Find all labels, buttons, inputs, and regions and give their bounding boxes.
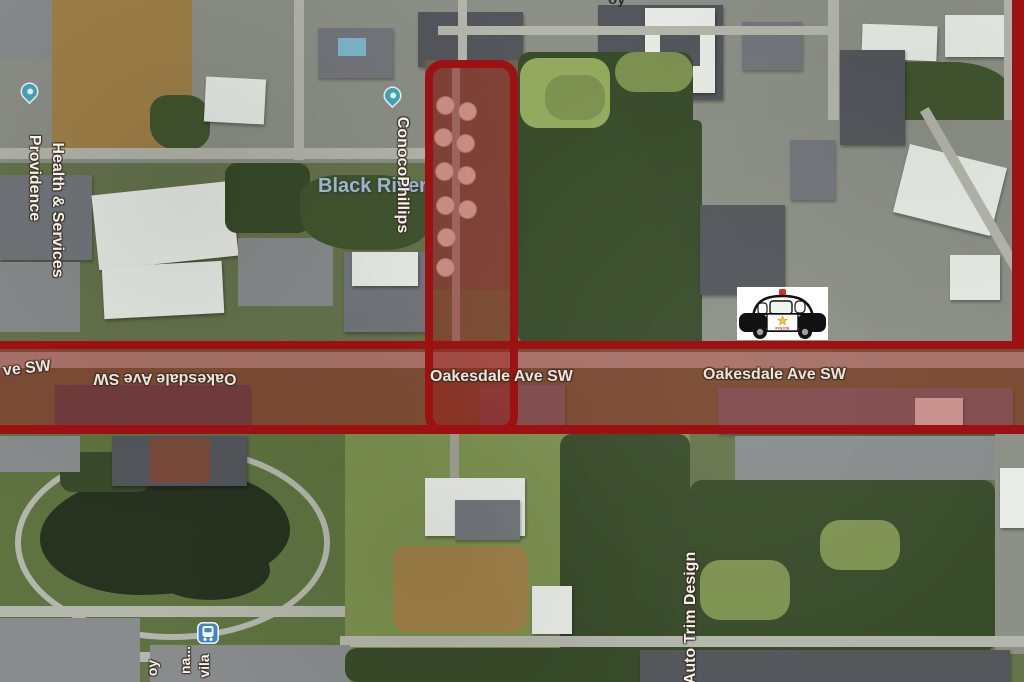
street-label-right: Oakesdale Ave SW: [703, 366, 846, 384]
parking-lot: [735, 436, 995, 480]
road: [438, 26, 838, 35]
building: [204, 76, 266, 124]
highlight-right-edge-strip: [1012, 0, 1024, 349]
building: [150, 438, 210, 483]
transit-station-icon[interactable]: [197, 622, 219, 644]
building: [700, 205, 785, 295]
pond: [150, 540, 270, 600]
dirt-field: [393, 546, 528, 632]
top-edge-label-fragment: oy: [608, 0, 626, 8]
trees: [345, 648, 635, 682]
auto-trim-design-label: Auto Trim Design: [682, 552, 700, 682]
terrain-urban-block: [995, 434, 1024, 654]
parking-lot: [238, 238, 333, 306]
map-canvas[interactable]: Providence Health & Services Black River…: [0, 0, 1024, 682]
building: [840, 50, 905, 145]
pool: [338, 38, 366, 56]
police-car-marker[interactable]: POLICE: [737, 287, 828, 340]
trees: [225, 163, 310, 233]
road: [294, 0, 304, 160]
trees: [150, 95, 210, 150]
meadow: [700, 560, 790, 620]
meadow: [545, 75, 605, 120]
meadow: [820, 520, 900, 570]
bottom-label-fragment: oy: [144, 660, 160, 676]
building: [1000, 468, 1024, 528]
providence-label-line1: Providence: [25, 135, 43, 221]
building: [102, 261, 225, 319]
road: [458, 0, 467, 62]
building: [790, 140, 835, 200]
building: [532, 586, 572, 634]
building: [352, 252, 418, 286]
road: [0, 606, 345, 617]
building: [91, 181, 238, 270]
building: [455, 500, 520, 540]
street-label-center: Oakesdale Ave SW: [430, 368, 573, 386]
building: [0, 175, 92, 260]
parking-lot: [0, 436, 80, 472]
building: [418, 12, 523, 67]
providence-label-line2: Health & Services: [48, 142, 66, 277]
building: [950, 255, 1000, 300]
svg-text:POLICE: POLICE: [775, 327, 790, 331]
bottom-label-fragment: na...: [177, 646, 193, 674]
parking-lot: [0, 618, 140, 682]
street-label-flipped: Oakesdale Ave SW: [94, 369, 237, 387]
building: [945, 15, 1005, 57]
conocophillips-label: ConocoPhillips: [393, 117, 411, 233]
meadow: [615, 52, 693, 92]
bottom-label-fragment: vila: [196, 654, 212, 677]
parking-lot: [0, 262, 80, 332]
police-car-icon: POLICE: [737, 287, 828, 340]
